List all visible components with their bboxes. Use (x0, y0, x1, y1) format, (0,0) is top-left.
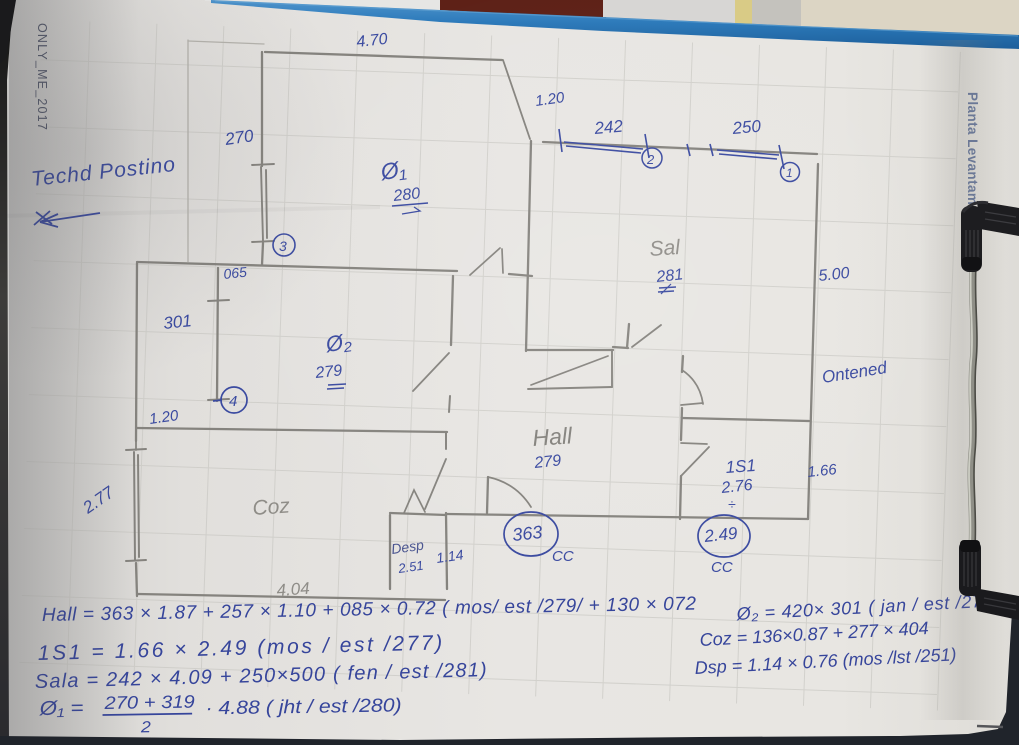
svg-text:2: 2 (140, 718, 152, 736)
svg-text:4.04: 4.04 (276, 579, 310, 600)
svg-text:· 4.88 ( jht / est /280): · 4.88 ( jht / est /280) (205, 695, 402, 719)
